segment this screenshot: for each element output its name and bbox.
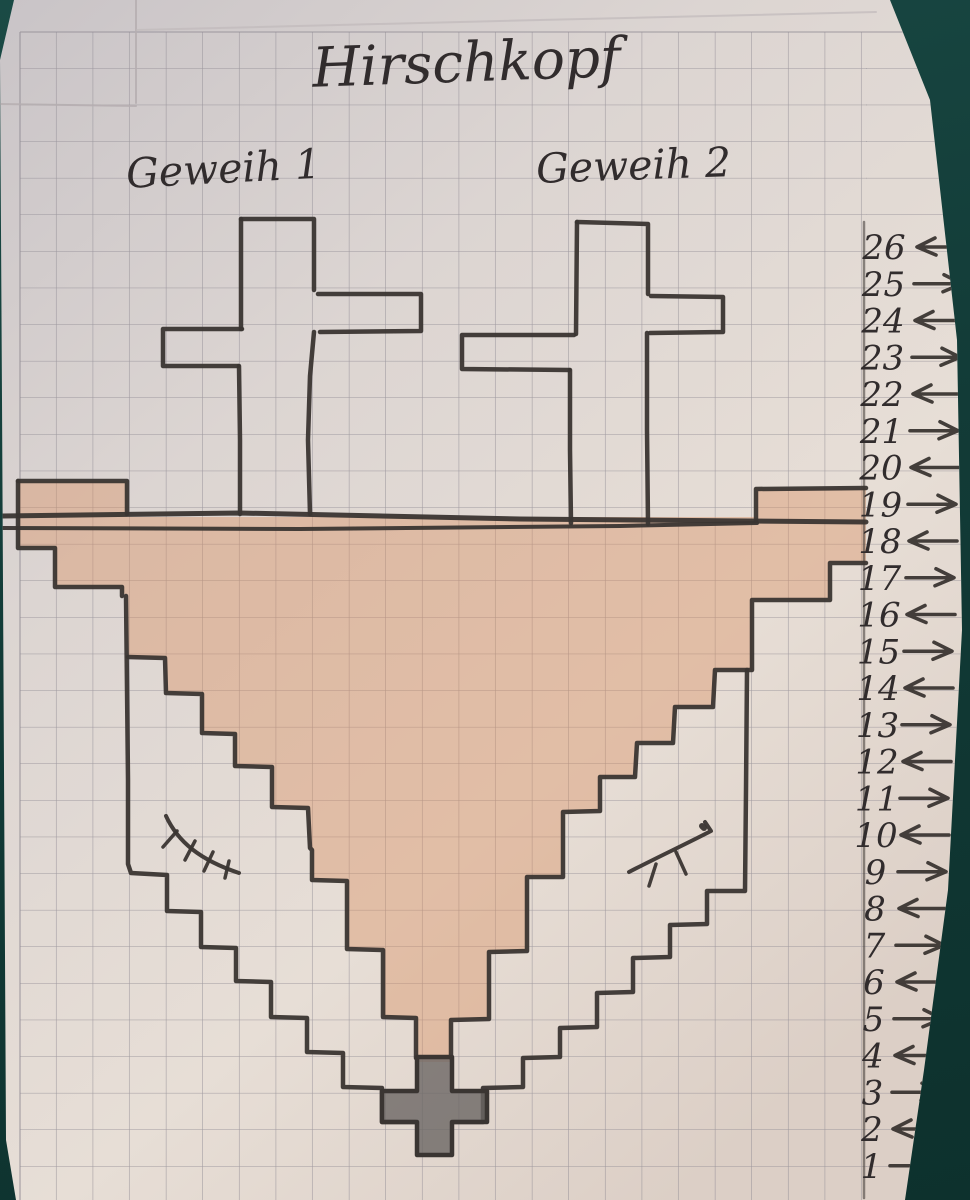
row-number: 4	[861, 1037, 884, 1077]
row-number: 7	[864, 926, 886, 966]
row-number: 26	[861, 228, 905, 268]
row-number: 23	[860, 338, 904, 378]
antler1-label: Geweih 1	[125, 140, 322, 198]
row-number: 18	[858, 522, 901, 562]
row-number: 3	[862, 1073, 884, 1113]
row-number: 14	[856, 669, 899, 709]
row-number: 21	[859, 412, 903, 452]
row-number: 12	[855, 743, 898, 783]
page-title: Hirschkopf	[310, 25, 630, 100]
row-number: 16	[857, 596, 900, 636]
row-number: 1	[861, 1147, 883, 1187]
row-number: 6	[863, 963, 885, 1003]
chart-scene: Hirschkopf Geweih 1 Geweih 2 26252423222…	[0, 0, 970, 1200]
photo-of-knitting-chart: Hirschkopf Geweih 1 Geweih 2 26252423222…	[0, 0, 970, 1200]
row-number: 10	[854, 816, 897, 856]
row-number: 15	[857, 632, 900, 672]
row-number: 13	[856, 706, 899, 746]
row-number: 11	[855, 779, 898, 819]
row-number: 17	[858, 559, 902, 599]
row-number: 20	[858, 449, 902, 489]
row-number: 8	[864, 890, 886, 930]
row-number: 22	[859, 375, 903, 415]
row-number: 9	[865, 853, 887, 893]
row-number: 25	[861, 265, 905, 305]
row-number: 24	[860, 302, 904, 342]
antler2-label: Geweih 2	[535, 138, 732, 193]
row-number: 2	[860, 1110, 883, 1150]
row-number: 5	[863, 1000, 885, 1040]
row-number: 19	[859, 485, 902, 525]
